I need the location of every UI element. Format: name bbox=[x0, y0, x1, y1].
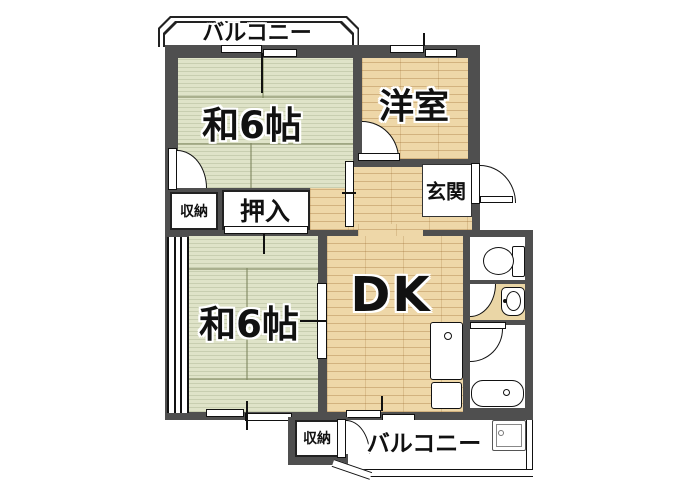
window-washitsu-lower-side bbox=[167, 237, 189, 413]
window-washitsu-lower-bottom bbox=[245, 413, 292, 421]
entrance-door-leaf bbox=[471, 163, 480, 204]
window-washitsu-upper bbox=[263, 49, 297, 57]
washbasin-bowl bbox=[506, 291, 521, 311]
window-tick bbox=[246, 401, 248, 430]
balcony-bottom-label: バルコニー bbox=[367, 424, 482, 458]
washing-machine-drain bbox=[498, 430, 504, 436]
fusuma-tick bbox=[263, 234, 265, 254]
yoshitsu-label: 洋室 bbox=[379, 79, 449, 130]
closet-lower-door-leaf bbox=[337, 419, 346, 458]
window-mullion bbox=[180, 237, 182, 413]
mat-line bbox=[189, 268, 318, 270]
bathroom-door-leaf bbox=[470, 322, 506, 329]
fusuma-washitsu-hall bbox=[345, 161, 354, 227]
oshiire-label: 押入 bbox=[240, 192, 290, 228]
toilet-icon bbox=[483, 247, 514, 275]
window-tick bbox=[261, 53, 263, 93]
mat-line bbox=[250, 143, 252, 188]
balcony-top-label: バルコニー bbox=[202, 15, 312, 47]
entrance-threshold bbox=[480, 196, 513, 203]
balcony-door-dk bbox=[346, 410, 381, 418]
bathtub-icon bbox=[471, 380, 524, 407]
balcony-bottom-rail bbox=[362, 469, 533, 477]
dk-label: DK bbox=[350, 267, 431, 323]
washitsu-lower-label: 和6帖 bbox=[199, 294, 299, 348]
washbasin-dot bbox=[503, 299, 507, 303]
shuno-upper-label: 収納 bbox=[180, 201, 208, 221]
bathtub-drain bbox=[503, 389, 510, 396]
window-washitsu-lower-bottom bbox=[206, 409, 244, 417]
closet-door-leaf bbox=[168, 148, 177, 190]
shuno-lower-label: 収納 bbox=[303, 428, 331, 448]
floor-plan: バルコニー 和6帖 洋室 玄関 収納 押入 和6帖 DK 収納 バルコニー bbox=[0, 0, 680, 480]
window-mullion bbox=[174, 237, 176, 413]
window-yoshitsu bbox=[390, 45, 424, 53]
washitsu-upper-label: 和6帖 bbox=[202, 95, 302, 149]
balcony-bottom-rail-right bbox=[526, 420, 533, 474]
kitchen-sink-icon bbox=[430, 322, 463, 380]
window-tick bbox=[423, 33, 425, 46]
kitchen-sink-drain bbox=[444, 332, 452, 340]
genkan-label: 玄関 bbox=[426, 176, 466, 205]
window-tick bbox=[381, 396, 383, 411]
fusuma-tick bbox=[300, 320, 327, 322]
window-yoshitsu bbox=[425, 49, 457, 57]
kitchen-counter-icon bbox=[431, 382, 462, 409]
mat-line bbox=[189, 378, 318, 380]
fusuma-tick bbox=[342, 192, 356, 194]
yoshitsu-door-leaf bbox=[358, 153, 400, 161]
